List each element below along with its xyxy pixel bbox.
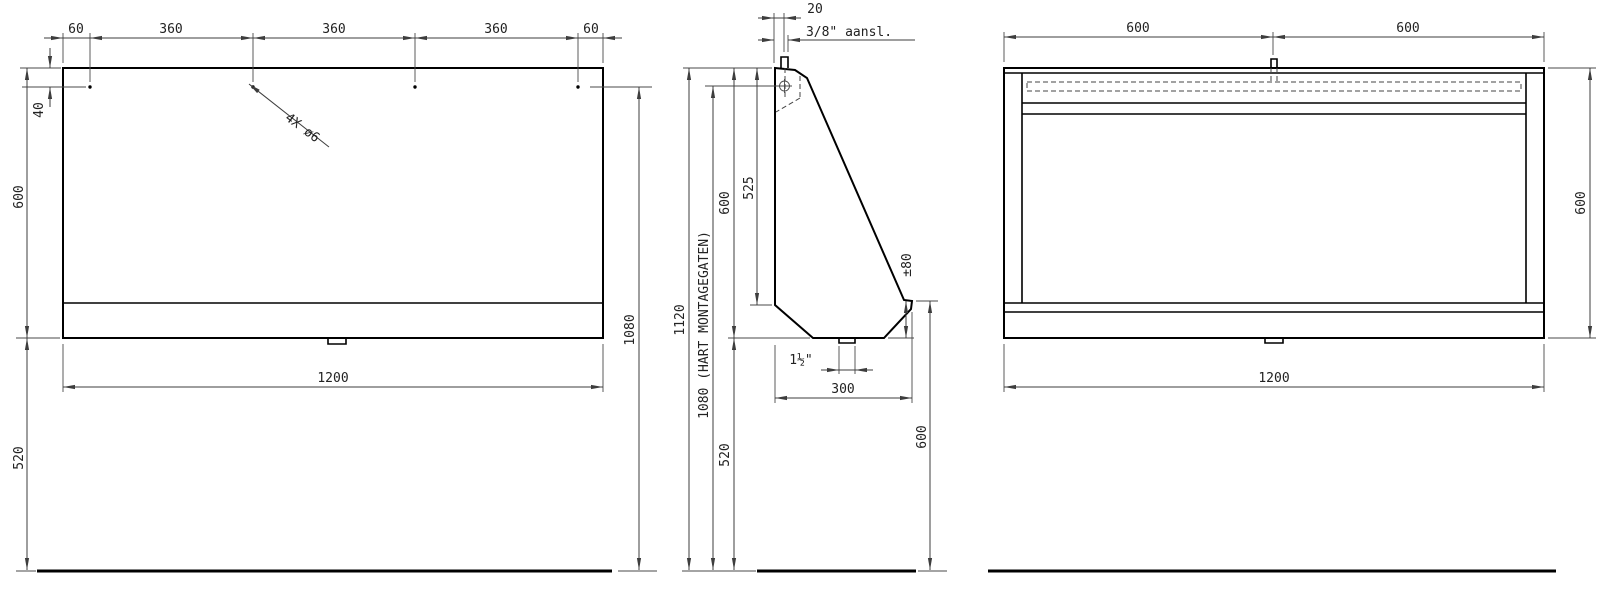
dim-label: 60: [583, 22, 599, 37]
side-left-dimensions: 1120 1080 (HART MONTAGEGATEN) 600 520 52…: [673, 68, 810, 570]
dim-label: 600: [1396, 21, 1419, 36]
dim-label: 300: [831, 382, 854, 397]
back-pipe-stub: [1271, 59, 1277, 68]
front-body-outline: [63, 68, 603, 338]
back-bottom-dimension: 1200: [1004, 344, 1544, 392]
dim-label: 600: [1126, 21, 1149, 36]
dim-label: 600: [718, 191, 733, 214]
back-right-dimension: 600: [1548, 68, 1596, 338]
technical-drawing-page: 60 360 360 360 60 40 600 520 1080 1200: [0, 0, 1611, 596]
drain-size-label: 1½": [789, 353, 812, 368]
back-side-flanges: [1022, 73, 1526, 303]
mounting-holes: [88, 85, 579, 88]
side-bottom-dimensions: 1½" 300: [775, 312, 912, 403]
dim-label: 40: [32, 102, 47, 118]
urinal-technical-drawing: 60 360 360 360 60 40 600 520 1080 1200: [0, 0, 1611, 596]
back-rail-lines: [1022, 103, 1526, 114]
dim-label: 600: [915, 425, 930, 448]
dim-label: 1200: [1258, 371, 1289, 386]
dim-label: ±80: [900, 253, 915, 276]
front-bottom-dimension: 1200: [63, 344, 603, 392]
front-view: 60 360 360 360 60 40 600 520 1080 1200: [12, 22, 652, 570]
connection-label: 3/8" aansl.: [806, 25, 892, 40]
dim-label: 1200: [317, 371, 348, 386]
dim-label: 520: [12, 446, 27, 469]
dim-label: 1120: [673, 304, 688, 335]
back-view: 600 600 600 1200: [1004, 21, 1596, 392]
dim-label: 60: [68, 22, 84, 37]
holes-annotation: 4X ø6: [249, 84, 329, 147]
front-top-dimensions: 60 360 360 360 60: [44, 22, 622, 82]
mount-centers-label: 1080 (HART MONTAGEGATEN): [697, 231, 712, 419]
back-apron-seams: [1004, 303, 1544, 312]
back-top-dimensions: 600 600: [1004, 21, 1544, 62]
dim-label: 600: [12, 185, 27, 208]
dim-label: 1080: [623, 314, 638, 345]
dim-label: 20: [807, 2, 823, 17]
front-drain-notch: [328, 339, 346, 344]
front-left-dimensions: 40 600 520: [12, 48, 86, 570]
side-pipe-stub: [781, 57, 788, 68]
side-profile-outline: [775, 68, 912, 338]
dim-label: 360: [159, 22, 182, 37]
dim-label: 360: [484, 22, 507, 37]
dim-label: 600: [1574, 191, 1589, 214]
back-body-outline: [1004, 68, 1544, 338]
side-top-dimensions: 20 3/8" aansl.: [758, 2, 915, 63]
front-right-dimension: 1080: [590, 87, 652, 570]
hidden-slot: [1027, 82, 1521, 91]
side-view: 20 3/8" aansl. 1120 1080 (HART MONTAGEGA…: [673, 2, 938, 570]
dim-label: 360: [322, 22, 345, 37]
holes-annotation-label: 4X ø6: [282, 110, 322, 146]
dim-label: 525: [742, 176, 757, 199]
dim-label: 520: [718, 443, 733, 466]
hidden-mount-hole: [776, 68, 800, 112]
